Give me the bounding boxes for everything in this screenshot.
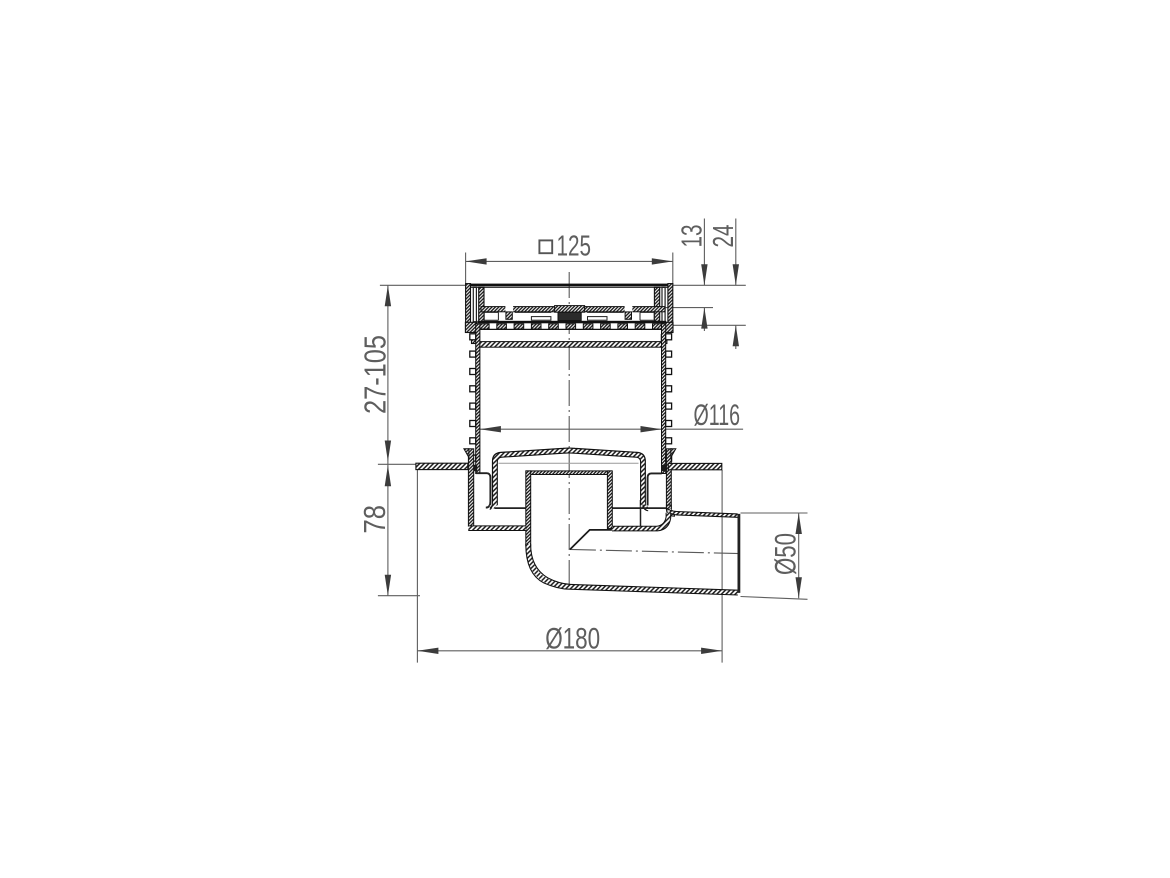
svg-text:13: 13 — [677, 225, 709, 248]
svg-text:Ø116: Ø116 — [694, 399, 741, 432]
svg-text:27-105: 27-105 — [358, 335, 393, 414]
svg-text:78: 78 — [357, 505, 392, 534]
svg-text:Ø180: Ø180 — [545, 622, 600, 655]
svg-text:Ø50: Ø50 — [770, 533, 803, 575]
svg-text:24: 24 — [708, 225, 740, 248]
svg-text:125: 125 — [557, 231, 592, 263]
